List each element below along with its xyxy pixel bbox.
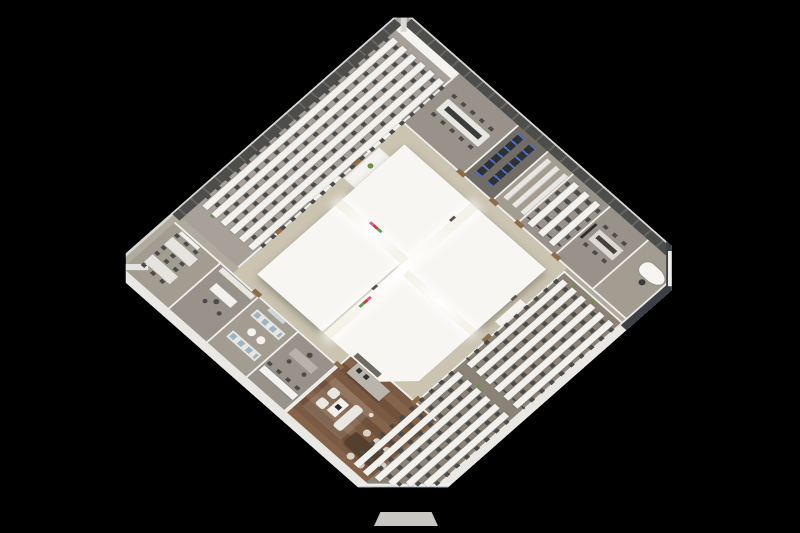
entrance-step — [374, 512, 438, 526]
credenza — [668, 251, 674, 286]
plan-tilt-wrapper — [195, 85, 611, 451]
facade-chamfer-top — [401, 7, 407, 32]
scene — [0, 0, 800, 533]
floor-plan — [109, 9, 697, 527]
